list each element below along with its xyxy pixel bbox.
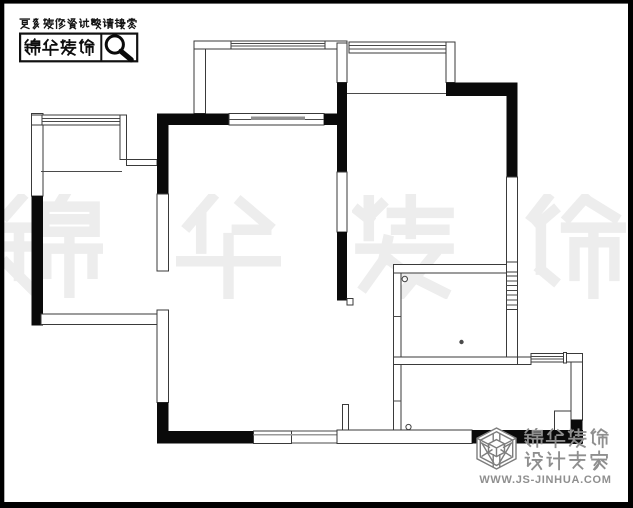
svg-text:WWW.JS-JINHUA.COM: WWW.JS-JINHUA.COM	[479, 474, 611, 486]
